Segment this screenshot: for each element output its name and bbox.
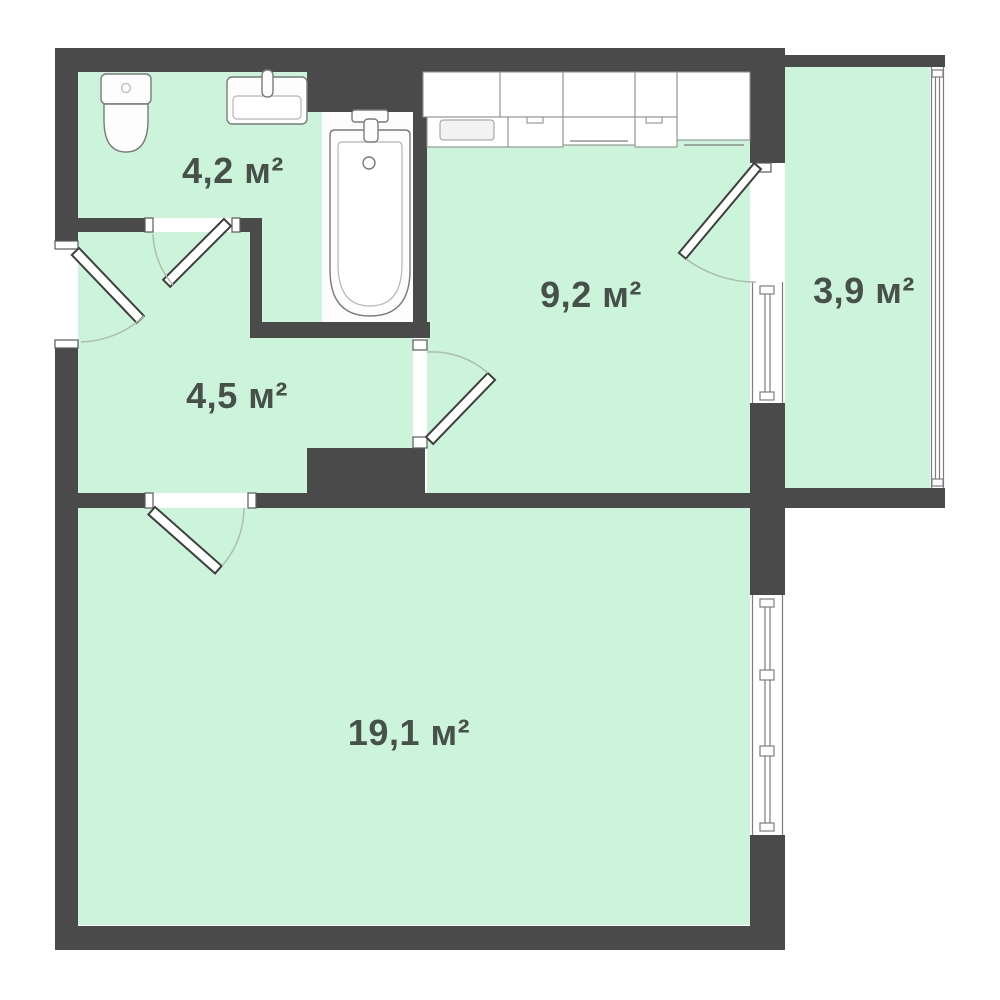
floor-plan: 4,2 м² 4,5 м² 9,2 м² 3,9 м² 19,1 м² bbox=[0, 0, 1000, 1000]
kitchen-counter bbox=[423, 72, 750, 147]
window-living-room bbox=[750, 595, 785, 835]
window-balcony bbox=[930, 67, 945, 488]
room-label-living-room: 19,1 м² bbox=[348, 712, 470, 754]
room-label-balcony: 3,9 м² bbox=[813, 270, 915, 312]
room-label-kitchen: 9,2 м² bbox=[540, 274, 642, 316]
sink-icon bbox=[227, 70, 307, 124]
window-kitchen-balcony bbox=[750, 282, 785, 403]
bathtub-icon bbox=[330, 110, 410, 316]
toilet-icon bbox=[101, 74, 151, 152]
floor-plan-drawing bbox=[0, 0, 1000, 1000]
room-label-hallway: 4,5 м² bbox=[186, 375, 288, 417]
room-label-bathroom: 4,2 м² bbox=[182, 150, 284, 192]
